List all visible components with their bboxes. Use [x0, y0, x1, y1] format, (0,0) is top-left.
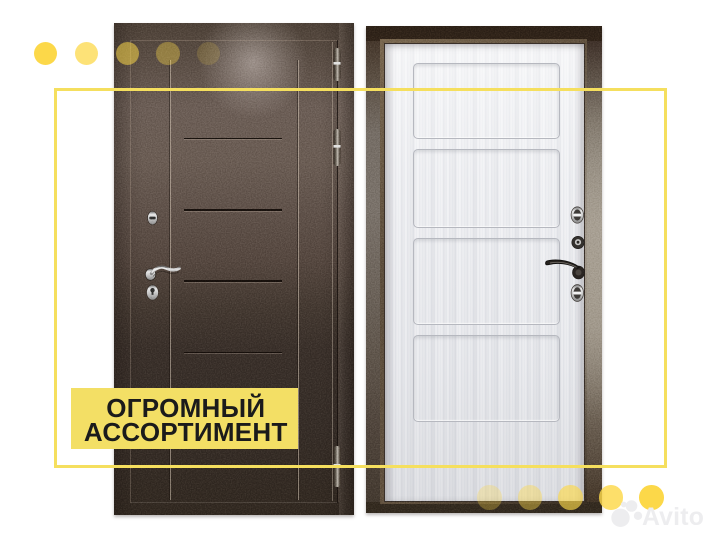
svg-text:Avito: Avito	[642, 504, 704, 531]
